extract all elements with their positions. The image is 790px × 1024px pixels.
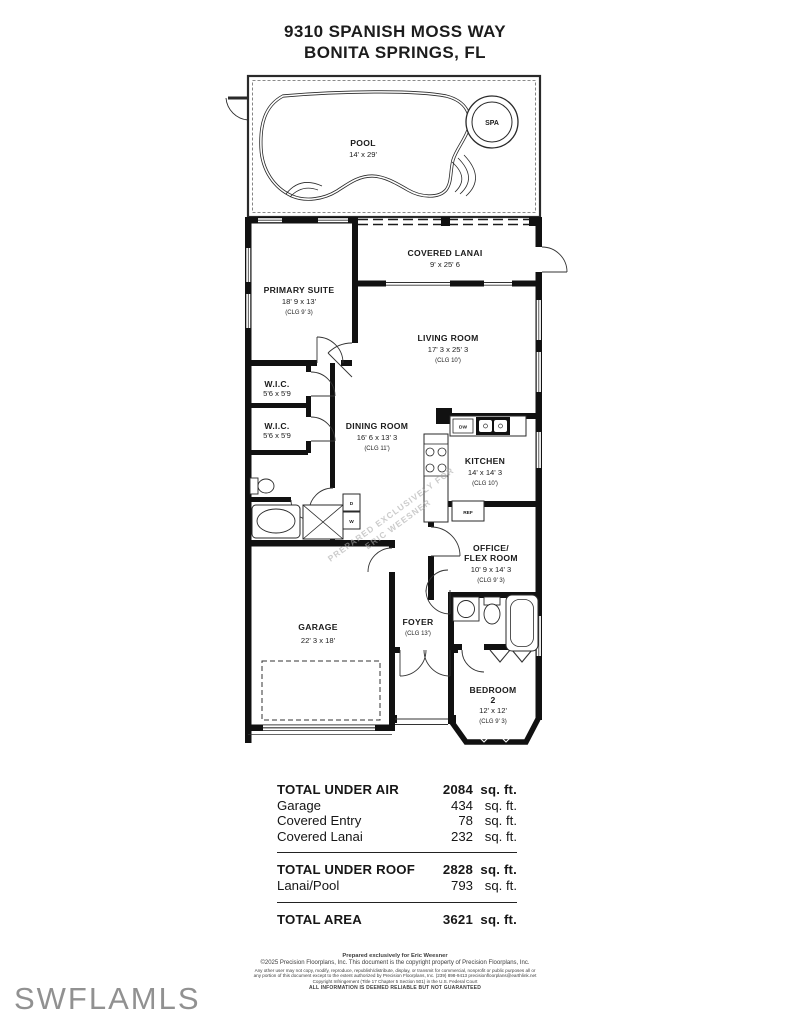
- garage-dims: 22' 3 x 18': [301, 636, 336, 645]
- row-unit: sq. ft.: [473, 798, 517, 814]
- table-row-lanai-pool: Lanai/Pool 793 sq. ft.: [277, 878, 517, 894]
- row-unit: sq. ft.: [473, 782, 517, 798]
- dining-room-dims: 16' 6 x 13' 3: [357, 433, 397, 442]
- row-value: 3621: [421, 912, 473, 928]
- row-label: TOTAL UNDER ROOF: [277, 862, 421, 878]
- row-value: 78: [421, 813, 473, 829]
- primary-suite-label: PRIMARY SUITE: [264, 285, 335, 295]
- office-clg: (CLG 9' 3): [477, 578, 505, 584]
- pool-label: POOL: [350, 138, 376, 148]
- row-label: Covered Lanai: [277, 829, 421, 845]
- row-unit: sq. ft.: [473, 862, 517, 878]
- primary-bath-fixtures: [250, 478, 360, 539]
- lanai-screen-edge: [358, 217, 538, 226]
- dining-room-label: DINING ROOM: [346, 421, 409, 431]
- row-value: 232: [421, 829, 473, 845]
- table-separator: [277, 902, 517, 903]
- living-room-label: LIVING ROOM: [417, 333, 478, 343]
- row-label: Lanai/Pool: [277, 878, 421, 894]
- kitchen-clg: (CLG 10'): [472, 481, 498, 487]
- row-unit: sq. ft.: [473, 878, 517, 894]
- walls-layer: [245, 217, 542, 743]
- table-row-garage: Garage 434 sq. ft.: [277, 798, 517, 814]
- table-row-covered-entry: Covered Entry 78 sq. ft.: [277, 813, 517, 829]
- wic2-label: W.I.C.: [264, 421, 289, 431]
- covered-lanai-dims: 9' x 25' 6: [430, 260, 460, 269]
- dining-room-clg: (CLG 11'): [364, 446, 389, 452]
- bath2-fixtures: [453, 595, 538, 651]
- primary-suite-dims: 18' 9 x 13': [282, 297, 317, 306]
- table-row-covered-lanai: Covered Lanai 232 sq. ft.: [277, 829, 517, 845]
- office-dims: 10' 9 x 14' 3: [471, 565, 511, 574]
- row-unit: sq. ft.: [473, 912, 517, 928]
- mls-watermark: SWFLAMLS: [14, 981, 201, 1017]
- footer-line2: ©2025 Precision Floorplans, Inc. This do…: [0, 960, 790, 968]
- footer-line1: Prepared exclusively for Eric Weesner: [0, 953, 790, 960]
- row-unit: sq. ft.: [473, 829, 517, 845]
- living-room-clg: (CLG 10'): [435, 358, 461, 364]
- office-label-2: FLEX ROOM: [464, 553, 518, 563]
- bedroom2-label-1: BEDROOM: [470, 685, 517, 695]
- foyer-label: FOYER: [402, 617, 434, 627]
- pool-dims: 14' x 29': [349, 150, 377, 159]
- row-label: TOTAL AREA: [277, 912, 421, 928]
- dryer-label: D: [350, 501, 354, 507]
- table-row-total-area: TOTAL AREA 3621 sq. ft.: [277, 912, 517, 928]
- row-value: 2828: [421, 862, 473, 878]
- kitchen-dims: 14' x 14' 3: [468, 468, 502, 477]
- bedroom2-dims: 12' x 12': [479, 706, 507, 715]
- row-label: Covered Entry: [277, 813, 421, 829]
- spa-label: SPA: [485, 120, 499, 127]
- toilet-icon: [250, 478, 258, 494]
- row-value: 793: [421, 878, 473, 894]
- dishwasher-label: DW: [459, 425, 467, 431]
- wic1-label: W.I.C.: [264, 379, 289, 389]
- table-separator: [277, 852, 517, 853]
- bedroom2-clg: (CLG 9' 3): [479, 719, 507, 725]
- table-row-total-under-roof: TOTAL UNDER ROOF 2828 sq. ft.: [277, 862, 517, 878]
- primary-suite-clg: (CLG 9' 3): [285, 310, 313, 316]
- covered-lanai-label: COVERED LANAI: [407, 248, 482, 258]
- foyer-clg: (CLG 13'): [405, 631, 431, 637]
- kitchen-label: KITCHEN: [465, 456, 505, 466]
- row-value: 2084: [421, 782, 473, 798]
- row-label: TOTAL UNDER AIR: [277, 782, 421, 798]
- refrigerator-label: REF: [463, 510, 473, 516]
- floor-plan-page: 9310 SPANISH MOSS WAY BONITA SPRINGS, FL: [0, 0, 790, 1024]
- wic1-dims: 5'6 x 5'9: [263, 389, 291, 398]
- row-value: 434: [421, 798, 473, 814]
- living-room-dims: 17' 3 x 25' 3: [428, 345, 468, 354]
- washer-label: W: [349, 519, 354, 525]
- table-row-total-under-air: TOTAL UNDER AIR 2084 sq. ft.: [277, 782, 517, 798]
- office-label-1: OFFICE/: [473, 543, 509, 553]
- garage-label: GARAGE: [298, 622, 338, 632]
- area-table: TOTAL UNDER AIR 2084 sq. ft. Garage 434 …: [277, 782, 517, 927]
- bedroom2-label-2: 2: [490, 695, 495, 705]
- row-unit: sq. ft.: [473, 813, 517, 829]
- wic2-dims: 5'6 x 5'9: [263, 431, 291, 440]
- row-label: Garage: [277, 798, 421, 814]
- garage-details: [248, 661, 448, 735]
